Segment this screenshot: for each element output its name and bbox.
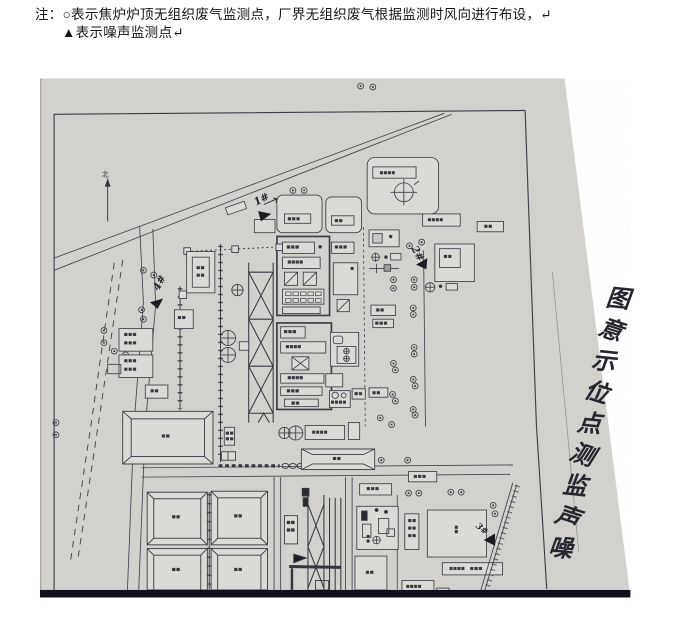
photo-bottom-edge <box>40 590 630 598</box>
note-line-1: 注：○表示焦炉炉顶无组织废气监测点，厂界无组织废气根据监测时风向进行布设，↵ <box>35 6 655 24</box>
north-label: 北 <box>102 170 109 178</box>
note-text: 注：○表示焦炉炉顶无组织废气监测点，厂界无组织废气根据监测时风向进行布设，↵ ▲… <box>35 6 655 42</box>
note-line-2: ▲表示噪声监测点↵ <box>35 24 655 42</box>
